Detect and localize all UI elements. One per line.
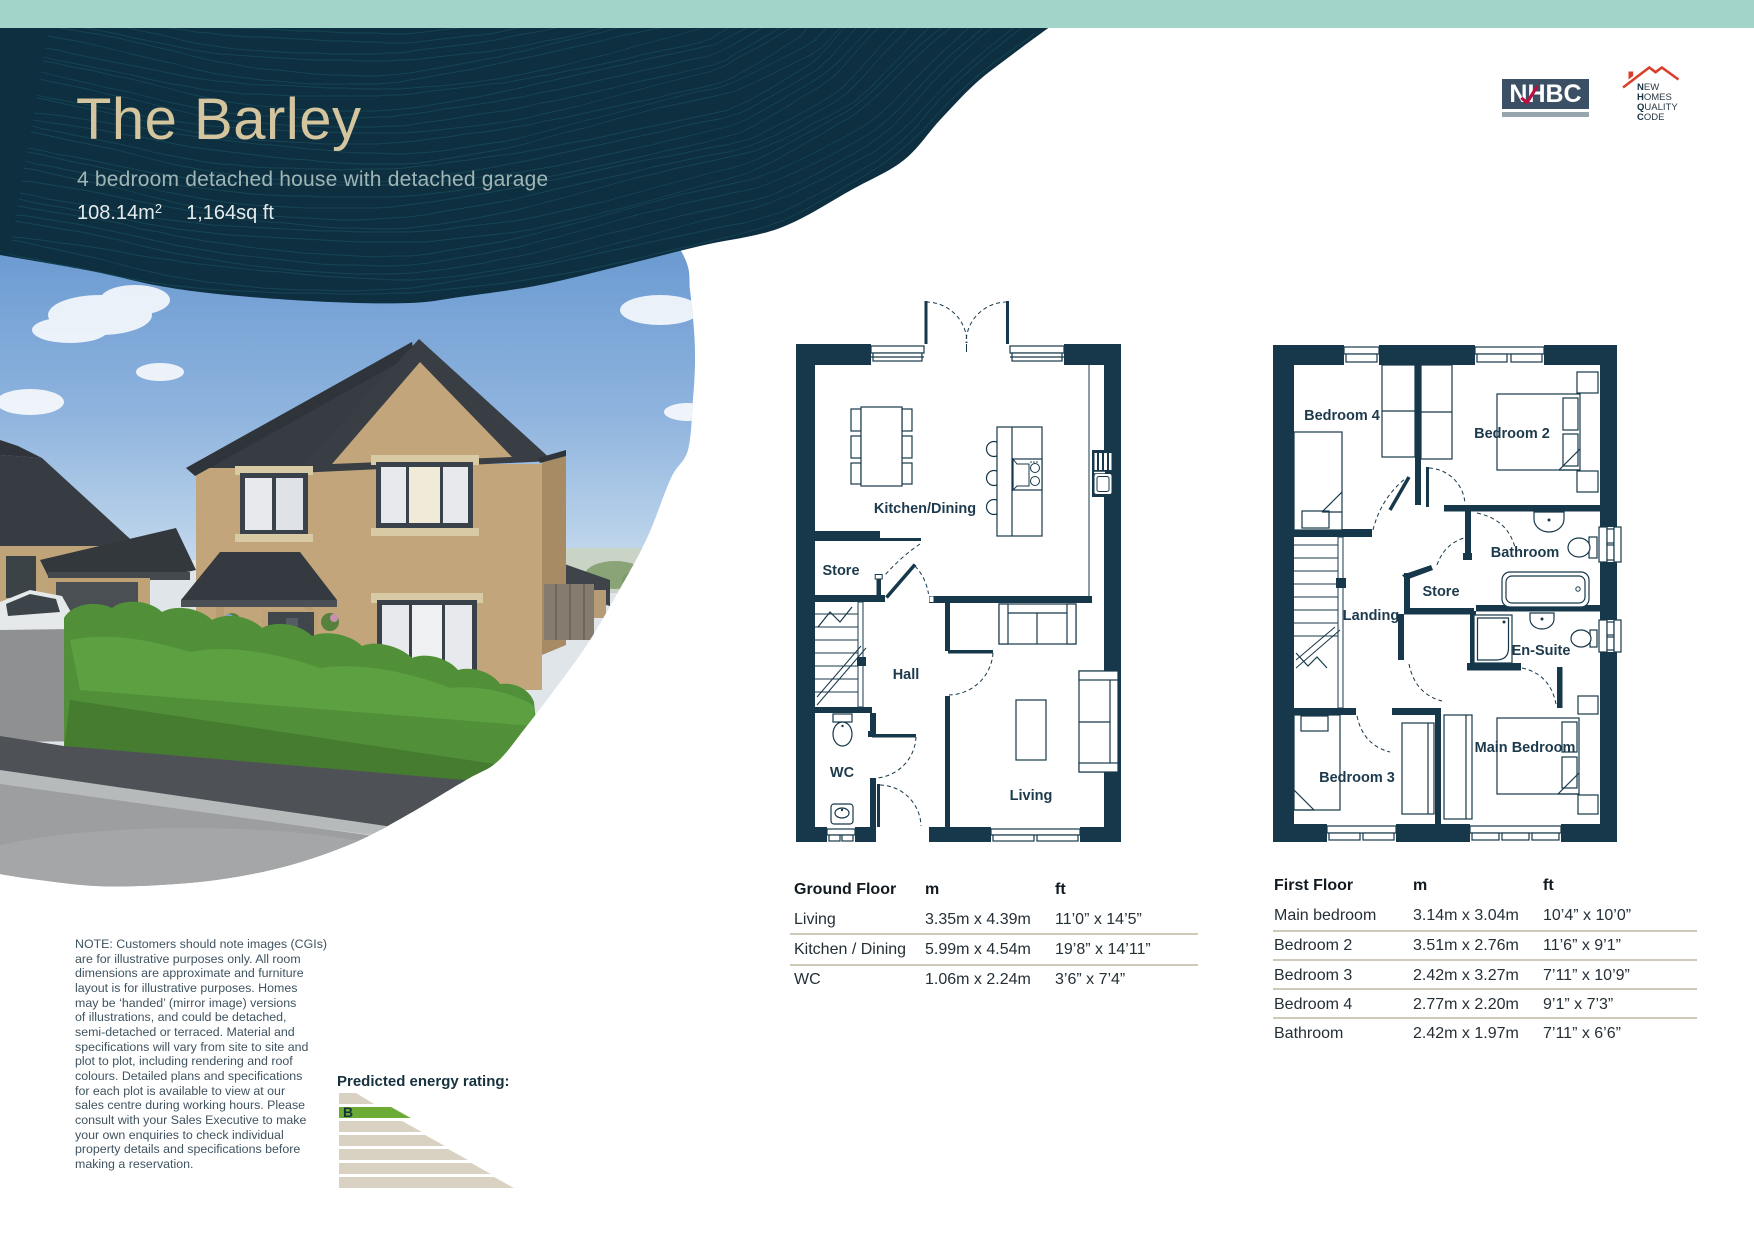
svg-text:En-Suite: En-Suite — [1512, 643, 1571, 659]
svg-text:Bedroom 2: Bedroom 2 — [1474, 426, 1550, 442]
svg-text:B: B — [343, 1104, 353, 1120]
svg-text:Bathroom: Bathroom — [1491, 545, 1559, 561]
svg-text:Store: Store — [1422, 584, 1459, 600]
svg-text:Main Bedroom: Main Bedroom — [1475, 740, 1576, 756]
svg-text:CODE: CODE — [1637, 112, 1664, 122]
svg-text:Bedroom 4: Bedroom 4 — [1304, 408, 1380, 424]
svg-text:Landing: Landing — [1343, 608, 1399, 624]
svg-text:Bedroom 3: Bedroom 3 — [1319, 770, 1395, 786]
